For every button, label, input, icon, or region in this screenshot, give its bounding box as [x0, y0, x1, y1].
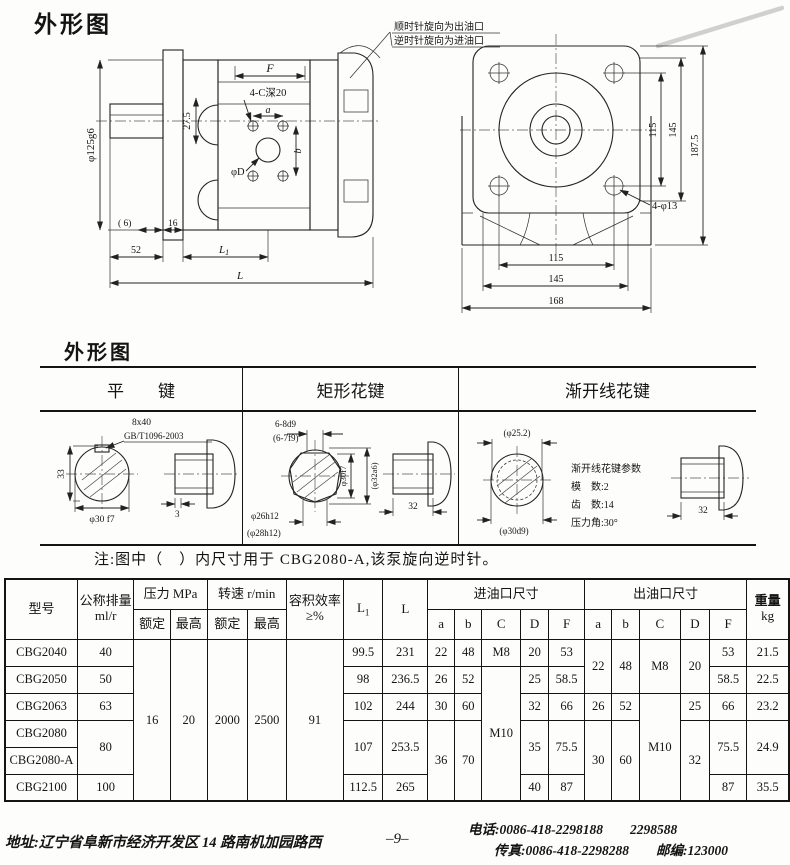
cell-inlet-D: 35	[520, 720, 548, 774]
th-speed-max: 最高	[248, 609, 287, 639]
cell-pressure-rated: 16	[134, 639, 171, 801]
th-pressure-rated: 额定	[134, 609, 171, 639]
involute-spline-cell: (φ25.2) (φ30d9) 渐开线花键参数 模 数:2 齿 数:14 压力角…	[458, 412, 756, 544]
cell-inlet-F: 66	[549, 693, 585, 720]
cell-inlet-F: 53	[549, 639, 585, 666]
spec-table: 型号 公称排量 ml/r 压力 MPa 转速 r/min 容积效率 ≥% L1 …	[4, 578, 790, 802]
cell-weight: 24.9	[747, 720, 789, 774]
cell-efficiency: 91	[286, 639, 343, 801]
cell-L1: 112.5	[344, 774, 383, 801]
cell-disp: 63	[78, 693, 134, 720]
dim-v115: 115	[648, 123, 659, 138]
cell-inlet-b: 70	[454, 720, 481, 801]
cell-inlet-a: 22	[428, 639, 455, 666]
cell-model: CBG2080	[5, 720, 78, 747]
cell-inlet-F: 87	[549, 774, 585, 801]
key-table-header: 平 键 矩形花键 渐开线花键	[40, 368, 756, 412]
footer-fax-postcode: 传真:0086-418-2298288 邮编:123000	[494, 841, 728, 862]
spec-table-wrap: 型号 公称排量 ml/r 压力 MPa 转速 r/min 容积效率 ≥% L1 …	[4, 578, 790, 802]
cell-L: 231	[383, 639, 428, 666]
cell-outlet-a: 26	[584, 693, 611, 720]
dim-h168: 168	[549, 296, 564, 307]
involute-module: 模 数:2	[571, 480, 609, 493]
th-pressure-max: 最高	[170, 609, 207, 639]
th-speed: 转速 r/min	[207, 579, 286, 609]
flat-key-cell: 8x40 GB/T1096-2003 33 φ30 f7	[40, 412, 242, 544]
cell-weight: 23.2	[747, 693, 789, 720]
cell-L: 265	[383, 774, 428, 801]
cell-inlet-b: 52	[454, 666, 481, 693]
dim-L1: L1	[218, 244, 229, 257]
cell-inlet-F: 75.5	[549, 720, 585, 774]
cell-outlet-b: 52	[612, 693, 639, 720]
pump-front-view	[460, 34, 655, 255]
dim-F: F	[265, 61, 274, 75]
cell-weight: 21.5	[747, 639, 789, 666]
callout-ccw-inlet: 逆时针旋向为进油口	[394, 34, 484, 47]
th-inlet-C: C	[482, 609, 521, 639]
th-inlet-F: F	[549, 609, 585, 639]
th-inlet-a: a	[428, 609, 455, 639]
th-L1: L1	[344, 579, 383, 639]
involute-teeth: 齿 数:14	[571, 498, 614, 511]
dim-a: a	[266, 105, 271, 116]
cell-L1: 107	[344, 720, 383, 774]
cell-inlet-a: 26	[428, 666, 455, 693]
cell-disp: 80	[78, 720, 134, 774]
header-involute-spline: 渐开线花键	[458, 368, 756, 410]
cell-pressure-max: 20	[170, 639, 207, 801]
cell-speed-rated: 2000	[207, 639, 247, 801]
outline-drawings: φ125g6 27.5 F 4-C深20 a b φD ( 6) 16	[0, 20, 790, 332]
flat-key-shaft-dia: φ30 f7	[89, 514, 115, 525]
dim-6: ( 6)	[118, 218, 131, 229]
cell-inlet-F: 58.5	[549, 666, 585, 693]
cell-outlet-C: M10	[639, 693, 680, 801]
cell-outlet-D: 25	[680, 693, 709, 720]
th-weight: 重量 kg	[747, 579, 789, 639]
rect-spline-cell: 6-8d9 (6-7f9) φ30f7 (φ32a6) φ26h12 (φ28h	[242, 412, 458, 544]
cell-outlet-D: 20	[680, 639, 709, 693]
flat-key-dim-33: 33	[57, 469, 67, 479]
th-outlet: 出油口尺寸	[584, 579, 746, 609]
dim-tapped-holes: 4-C深20	[250, 87, 287, 99]
cell-outlet-b: 48	[612, 639, 639, 693]
rect-spline-spec: 6-8d9	[275, 419, 296, 429]
spec-header-row-1: 型号 公称排量 ml/r 压力 MPa 转速 r/min 容积效率 ≥% L1 …	[5, 579, 789, 609]
footer-phone: 电话:0086-418-2298188 2298588	[468, 820, 728, 841]
dim-pilot-diameter: φ125g6	[85, 128, 97, 162]
dim-h145: 145	[549, 274, 564, 285]
cell-outlet-F: 66	[709, 693, 746, 720]
dim-16: 16	[168, 219, 178, 229]
table-row: CBG2063 63 102 244 30 60 32 66 26 52 M10…	[5, 693, 789, 720]
cell-inlet-a: 30	[428, 693, 455, 720]
cell-inlet-C: M8	[482, 639, 521, 666]
rect-spline-d3: φ26h12	[251, 511, 279, 521]
flat-key-dim-3: 3	[175, 509, 180, 519]
th-outlet-a: a	[584, 609, 611, 639]
involute-spline-drawing: (φ25.2) (φ30d9) 渐开线花键参数 模 数:2 齿 数:14 压力角…	[459, 412, 755, 544]
cell-weight: 35.5	[747, 774, 789, 801]
flat-key-size: 8x40	[132, 418, 151, 428]
th-inlet: 进油口尺寸	[428, 579, 585, 609]
dim-L: L	[236, 270, 243, 282]
footer-address: 地址:辽宁省阜新市经济开发区 14 路南机加园路西	[5, 831, 322, 852]
cell-L1: 99.5	[344, 639, 383, 666]
rect-spline-d1: φ30f7	[338, 466, 348, 487]
cell-outlet-a: 30	[584, 720, 611, 801]
datasheet-page: 外形图	[0, 0, 790, 865]
flat-key-drawing: 8x40 GB/T1096-2003 33 φ30 f7	[40, 412, 242, 544]
involute-d2: (φ30d9)	[499, 526, 528, 536]
cell-inlet-a: 36	[428, 720, 455, 801]
cell-model: CBG2040	[5, 639, 78, 666]
drawing-note: 注:图中（ ）内尺寸用于 CBG2080-A,该泵旋向逆时针。	[94, 548, 498, 569]
cell-model: CBG2080-A	[5, 747, 78, 774]
th-speed-rated: 额定	[207, 609, 247, 639]
cell-inlet-D: 32	[520, 693, 548, 720]
cell-disp: 50	[78, 666, 134, 693]
cell-model: CBG2063	[5, 693, 78, 720]
dim-v145: 145	[668, 123, 679, 138]
cell-outlet-F: 58.5	[709, 666, 746, 693]
cell-outlet-C: M8	[639, 639, 680, 693]
th-pressure: 压力 MPa	[134, 579, 207, 609]
th-outlet-D: D	[680, 609, 709, 639]
th-efficiency: 容积效率 ≥%	[286, 579, 343, 639]
th-displacement: 公称排量 ml/r	[78, 579, 134, 639]
table-row: CBG2040 40 16 20 2000 2500 91 99.5 231 2…	[5, 639, 789, 666]
pump-side-view	[96, 46, 380, 240]
cell-L1: 102	[344, 693, 383, 720]
cell-speed-max: 2500	[248, 639, 287, 801]
cell-inlet-D: 40	[520, 774, 548, 801]
dim-h115: 115	[549, 253, 564, 264]
cell-inlet-D: 20	[520, 639, 548, 666]
cell-L: 244	[383, 693, 428, 720]
cell-outlet-b: 60	[612, 720, 639, 801]
cell-weight: 22.5	[747, 666, 789, 693]
cell-L1: 98	[344, 666, 383, 693]
th-inlet-D: D	[520, 609, 548, 639]
th-L: L	[383, 579, 428, 639]
dim-phiD: φD	[231, 167, 245, 178]
key-types-table: 平 键 矩形花键 渐开线花键 8x40 GB/T1096-2003	[40, 366, 756, 546]
header-flat-key: 平 键	[40, 368, 242, 410]
page-number: –9–	[386, 831, 409, 848]
rect-spline-length: 32	[408, 502, 418, 512]
cell-L: 236.5	[383, 666, 428, 693]
flat-key-standard: GB/T1096-2003	[124, 431, 184, 441]
th-model: 型号	[5, 579, 78, 639]
cell-outlet-F: 75.5	[709, 720, 746, 774]
cell-inlet-b: 48	[454, 639, 481, 666]
cell-model: CBG2050	[5, 666, 78, 693]
th-inlet-b: b	[454, 609, 481, 639]
involute-length: 32	[698, 506, 708, 516]
header-rect-spline: 矩形花键	[242, 368, 458, 410]
th-outlet-F: F	[709, 609, 746, 639]
involute-params-title: 渐开线花键参数	[571, 462, 641, 475]
dim-27-5: 27.5	[182, 112, 193, 130]
cell-L: 253.5	[383, 720, 428, 774]
dim-b: b	[293, 149, 304, 154]
rect-spline-spec-alt: (6-7f9)	[273, 433, 299, 443]
callout-cw-outlet: 顺时针旋向为出油口	[394, 20, 484, 33]
cell-outlet-a: 22	[584, 639, 611, 693]
rect-spline-d2: (φ32a6)	[369, 462, 379, 489]
footer-contact: 电话:0086-418-2298188 2298588 传真:0086-418-…	[468, 820, 728, 862]
cell-inlet-b: 60	[454, 693, 481, 720]
section-title-keys: 外形图	[64, 336, 133, 365]
dim-52: 52	[131, 245, 141, 256]
key-table-body: 8x40 GB/T1096-2003 33 φ30 f7	[40, 412, 756, 544]
cell-disp: 40	[78, 639, 134, 666]
involute-d1: (φ25.2)	[504, 428, 531, 438]
cell-model: CBG2100	[5, 774, 78, 801]
dim-v187-5: 187.5	[690, 135, 701, 158]
cell-inlet-D: 25	[520, 666, 548, 693]
cell-outlet-D: 32	[680, 720, 709, 801]
cell-disp: 100	[78, 774, 134, 801]
rect-spline-d4: (φ28h12)	[247, 528, 281, 538]
cell-inlet-C: M10	[482, 666, 521, 801]
cell-outlet-F: 53	[709, 639, 746, 666]
cell-outlet-F: 87	[709, 774, 746, 801]
dim-mounting-holes: 4-φ13	[652, 201, 677, 212]
th-outlet-b: b	[612, 609, 639, 639]
involute-pressure-angle: 压力角:30°	[571, 516, 618, 529]
th-outlet-C: C	[639, 609, 680, 639]
rect-spline-drawing: 6-8d9 (6-7f9) φ30f7 (φ32a6) φ26h12 (φ28h	[243, 412, 457, 544]
